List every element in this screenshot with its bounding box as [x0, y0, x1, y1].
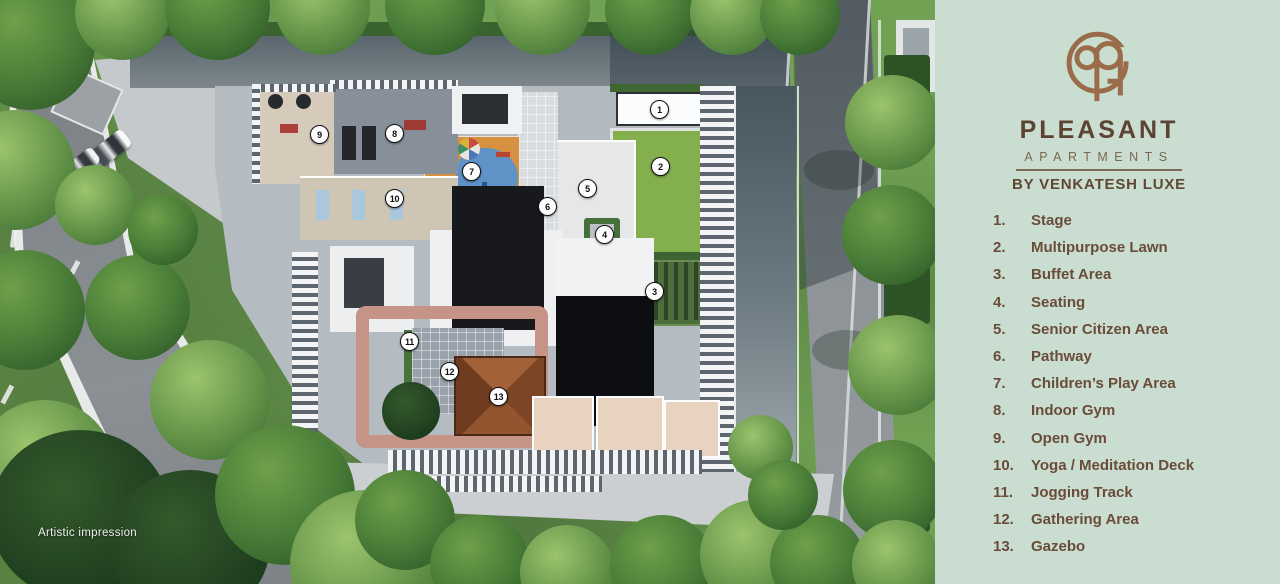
legend-item-label: Jogging Track — [1031, 484, 1280, 501]
plan-marker-open-gym: 9 — [310, 125, 329, 144]
brand-header: PLEASANT APARTMENTS BY VENKATESH LUXE — [935, 0, 1263, 193]
yoga-mat — [352, 190, 365, 220]
balcony-strip-west — [292, 252, 318, 432]
legend-item-childrens-play-area: 7. Children’s Play Area — [993, 370, 1280, 397]
legend-item-jogging-track: 11. Jogging Track — [993, 479, 1280, 506]
legend-item-number: 12. — [993, 511, 1031, 528]
open-gym-machine — [280, 124, 298, 133]
legend-item-label: Yoga / Meditation Deck — [1031, 457, 1280, 474]
boundary-wall-line — [797, 86, 799, 472]
legend-item-label: Stage — [1031, 212, 1280, 229]
legend-item-number: 9. — [993, 430, 1031, 447]
umbrella-icon — [268, 94, 283, 109]
legend-item-number: 13. — [993, 538, 1031, 555]
yoga-mat — [316, 190, 329, 220]
roof-core — [344, 258, 384, 308]
legend-item-pathway: 6. Pathway — [993, 343, 1280, 370]
roof-plate — [556, 238, 654, 300]
legend-item-stage: 1. Stage — [993, 207, 1280, 234]
legend-item-number: 6. — [993, 348, 1031, 365]
legend-item-senior-citizen-area: 5. Senior Citizen Area — [993, 316, 1280, 343]
tree — [85, 255, 190, 360]
plan-marker-stage: 1 — [650, 100, 669, 119]
legend-item-number: 3. — [993, 266, 1031, 283]
legend-item-number: 8. — [993, 402, 1031, 419]
legend-item-label: Multipurpose Lawn — [1031, 239, 1280, 256]
plan-marker-senior-citizen-area: 5 — [578, 179, 597, 198]
plan-marker-yoga-meditation-deck: 10 — [385, 189, 404, 208]
legend-item-label: Seating — [1031, 294, 1280, 311]
legend-item-multipurpose-lawn: 2. Multipurpose Lawn — [993, 234, 1280, 261]
legend-item-number: 1. — [993, 212, 1031, 229]
play-roundabout — [458, 138, 480, 160]
legend-item-label: Buffet Area — [1031, 266, 1280, 283]
legend-item-gathering-area: 12. Gathering Area — [993, 506, 1280, 533]
tree — [55, 165, 135, 245]
open-gym-railing — [256, 84, 336, 92]
terrace-unit — [532, 396, 594, 458]
balcony-strip-south — [388, 450, 702, 474]
legend-item-label: Children’s Play Area — [1031, 375, 1280, 392]
gym-equipment — [362, 126, 376, 160]
legend-item-indoor-gym: 8. Indoor Gym — [993, 397, 1280, 424]
plan-marker-pathway: 6 — [538, 197, 557, 216]
legend-item-label: Senior Citizen Area — [1031, 321, 1280, 338]
plan-marker-gathering-area: 12 — [440, 362, 459, 381]
legend-item-number: 2. — [993, 239, 1031, 256]
legend-item-number: 7. — [993, 375, 1031, 392]
east-apron — [734, 86, 796, 472]
pleasant-monogram-logo-icon — [1060, 30, 1138, 104]
brand-name: PLEASANT — [935, 116, 1263, 145]
legend-item-number: 4. — [993, 294, 1031, 311]
site-plan-render: 1 2 3 4 5 6 7 8 9 10 11 12 13 Artistic i… — [0, 0, 935, 584]
legend-item-buffet-area: 3. Buffet Area — [993, 261, 1280, 288]
legend-item-label: Gazebo — [1031, 538, 1280, 555]
tree — [842, 185, 935, 285]
terrace-unit — [596, 396, 664, 458]
plan-marker-multipurpose-lawn: 2 — [651, 157, 670, 176]
plan-marker-jogging-track: 11 — [400, 332, 419, 351]
gym-bench — [404, 120, 426, 130]
amenities-legend: 1. Stage 2. Multipurpose Lawn 3. Buffet … — [935, 207, 1280, 560]
plan-marker-seating: 4 — [595, 225, 614, 244]
plan-marker-gazebo: 13 — [489, 387, 508, 406]
tree — [128, 195, 198, 265]
legend-item-label: Indoor Gym — [1031, 402, 1280, 419]
brand-byline: BY VENKATESH LUXE — [935, 176, 1263, 193]
play-equipment — [496, 152, 510, 157]
tree — [845, 75, 935, 170]
stage-hedge — [610, 84, 704, 92]
brand-divider — [1016, 169, 1182, 171]
tree — [382, 382, 440, 440]
legend-item-number: 10. — [993, 457, 1031, 474]
legend-item-open-gym: 9. Open Gym — [993, 425, 1280, 452]
legend-item-number: 5. — [993, 321, 1031, 338]
master-plan-poster: 1 2 3 4 5 6 7 8 9 10 11 12 13 Artistic i… — [0, 0, 1280, 584]
brand-panel: PLEASANT APARTMENTS BY VENKATESH LUXE 1.… — [935, 0, 1280, 584]
plan-marker-indoor-gym: 8 — [385, 124, 404, 143]
gym-railing — [330, 80, 458, 89]
legend-item-yoga-meditation-deck: 10. Yoga / Meditation Deck — [993, 452, 1280, 479]
umbrella-icon — [296, 94, 311, 109]
legend-item-label: Open Gym — [1031, 430, 1280, 447]
plan-marker-childrens-play-area: 7 — [462, 162, 481, 181]
artistic-impression-caption: Artistic impression — [38, 527, 137, 539]
brand-type: APARTMENTS — [935, 150, 1263, 164]
legend-item-gazebo: 13. Gazebo — [993, 533, 1280, 560]
tree — [748, 460, 818, 530]
gym-equipment — [342, 126, 356, 160]
legend-item-number: 11. — [993, 484, 1031, 501]
balcony-strip-south — [432, 476, 602, 492]
roof-core — [462, 94, 508, 124]
legend-item-seating: 4. Seating — [993, 289, 1280, 316]
legend-item-label: Pathway — [1031, 348, 1280, 365]
legend-item-label: Gathering Area — [1031, 511, 1280, 528]
open-gym-railing — [252, 84, 260, 184]
plan-marker-buffet-area: 3 — [645, 282, 664, 301]
